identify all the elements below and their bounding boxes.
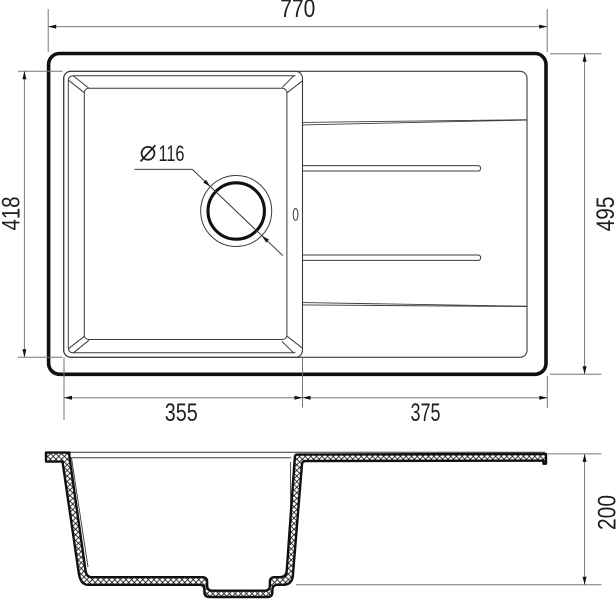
svg-text:375: 375 bbox=[411, 399, 441, 427]
svg-text:200: 200 bbox=[594, 495, 616, 530]
svg-text:418: 418 bbox=[0, 197, 26, 231]
svg-text:495: 495 bbox=[592, 196, 616, 231]
svg-text:770: 770 bbox=[280, 0, 315, 23]
svg-text:355: 355 bbox=[165, 399, 198, 427]
svg-text:116: 116 bbox=[159, 141, 185, 166]
